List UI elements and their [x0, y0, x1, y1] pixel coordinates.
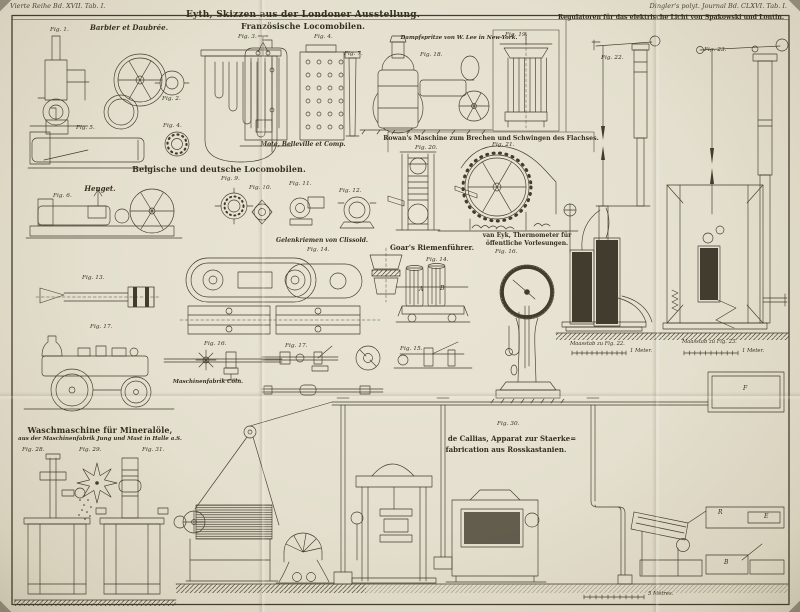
fig-label-19: Fig. 19. [505, 33, 528, 39]
fig29-star [77, 463, 117, 520]
vaneyk-thermometer [491, 265, 564, 403]
scale-caption-fig23: Maasstab zu Fig. 23. [682, 340, 737, 345]
title-dampfspritze: Dampfspritze von W. Lee in New-York. [401, 36, 518, 42]
title-callias-line1: de Callias, Apparat zur Staerke= [448, 435, 576, 442]
fold-crease-right [652, 0, 660, 612]
fig2-manhole [155, 71, 189, 95]
fig20-belt-elevator [388, 152, 440, 230]
fig14-chain-links [180, 248, 402, 334]
fig19-tube-bundle [500, 32, 552, 128]
fig-label-1: Fig. 1. [50, 28, 69, 34]
washing-tanks [14, 454, 176, 606]
fig-label-29: Fig. 29. [79, 448, 102, 454]
line-art [0, 0, 800, 612]
fig18-steam-fire-engine [360, 36, 492, 134]
fold-crease-horizontal [0, 392, 800, 400]
fig-label-30: Fig. 30. [497, 422, 520, 428]
fig-label-31: Fig. 31. [142, 448, 165, 454]
fig5-horizontal-boiler [28, 108, 152, 168]
fold-crease-left [258, 0, 266, 612]
fig-label-18: Fig. 18. [420, 53, 443, 59]
maker-mote: Mote, Belleville et Comp. [261, 142, 346, 148]
scale-caption-fig22: Maasstab zu Fig. 22. [570, 342, 625, 347]
fig-label-4a: Fig. 4. [314, 35, 333, 41]
fig6-henget-locomobile [26, 189, 182, 238]
fig-label-23: Fig. 23. [704, 48, 727, 54]
callias-press [351, 464, 436, 583]
fig-label-7: Fig. 7. [344, 52, 363, 58]
fig-label-22: Fig. 22. [601, 56, 624, 62]
fig-label-21: Fig. 21. [492, 143, 515, 149]
part-letter-a: A [419, 287, 423, 293]
fig-label-3: Fig. 3. [238, 35, 257, 41]
scale-meter-fig22: 1 Meter. [630, 349, 652, 354]
maker-henget: Henget. [84, 185, 115, 192]
part-letter-e: E [764, 514, 768, 520]
callias-dark-drum [446, 490, 546, 582]
subtitle-waschmaschine: aus der Maschinenfabrik Jung und Mast in… [18, 437, 182, 443]
fig-label-16-coeln: Fig. 16. [204, 342, 227, 348]
ground-lines [176, 584, 788, 593]
callias-mill [276, 533, 334, 583]
fig4-tube-panel [300, 45, 344, 140]
engraving-plate: Vierte Reihe Bd. XVII. Tab. I. Dingler's… [0, 0, 800, 612]
fig1-barbier-engine [30, 36, 270, 126]
fig-label-17-coeln: Fig. 17. [285, 344, 308, 350]
title-callias-line2: fabrication aus Rosskastanien. [446, 446, 567, 453]
barbier-flywheel [104, 54, 166, 129]
fig-label-16-vaneyk: Fig. 16. [495, 250, 518, 256]
part-letter-b2: B [724, 560, 728, 566]
fig-label-5: Fig. 5. [76, 126, 95, 132]
journal-label: Dingler's polyt. Journal Bd. CLXVI. Tab.… [650, 3, 787, 10]
title-goar: Goar's Riemenführer. [390, 244, 474, 251]
title-rowan: Rowan's Maschine zum Brechen und Schwing… [383, 136, 598, 142]
title-clissold: Gelenkriemen von Clissold. [276, 238, 368, 244]
fig4-flange [165, 132, 189, 156]
fig-label-9: Fig. 9. [221, 177, 240, 183]
fig-label-6: Fig. 6. [53, 194, 72, 200]
scale-meter-fig23: 1 Meter. [742, 349, 764, 354]
title-vaneyk-line2: öffentliche Vorlesungen. [486, 241, 568, 247]
fig-label-15-goar: Fig. 15. [400, 347, 423, 353]
maker-barbier: Barbier et Daubrée. [90, 24, 168, 31]
title-waschmaschine: Waschmaschine für Mineralöle, [28, 426, 173, 434]
fig-label-14-goar: Fig. 14. [426, 258, 449, 264]
fig21-flax-wheel [438, 146, 578, 231]
fig16-17-coeln-spindles [164, 346, 383, 395]
fig-label-12: Fig. 12. [339, 189, 362, 195]
fig-label-17-locomobile: Fig. 17. [90, 325, 113, 331]
title-belgisch: Belgische und deutsche Locomobilen. [132, 165, 306, 173]
title-regulatoren: Regulatoren für das elektrische Licht vo… [558, 15, 784, 21]
title-eyth: Eyth, Skizzen aus der Londoner Ausstellu… [186, 11, 420, 20]
fig-label-13: Fig. 13. [82, 276, 105, 282]
fig-label-14-clissold: Fig. 14. [307, 248, 330, 254]
fig-label-28: Fig. 28. [22, 448, 45, 454]
fig-label-4b: Fig. 4. [163, 124, 182, 130]
callias-drum-machine [174, 402, 332, 581]
maker-coeln: Maschinenfabrik Cöln. [173, 380, 243, 386]
fig-label-2: Fig. 2. [162, 97, 181, 103]
fig-label-11: Fig. 11. [289, 182, 312, 188]
plate-series-label: Vierte Reihe Bd. XVII. Tab. I. [10, 3, 105, 10]
battery-jars [562, 204, 652, 331]
part-letter-r: R [718, 510, 723, 516]
part-letter-b: B [440, 286, 444, 292]
fig-label-20: Fig. 20. [415, 146, 438, 152]
fig7-chimney [345, 52, 360, 136]
fig13-piston-rod [36, 287, 160, 307]
title-vaneyk-line1: van Eyk, Thermometer für [483, 233, 572, 239]
